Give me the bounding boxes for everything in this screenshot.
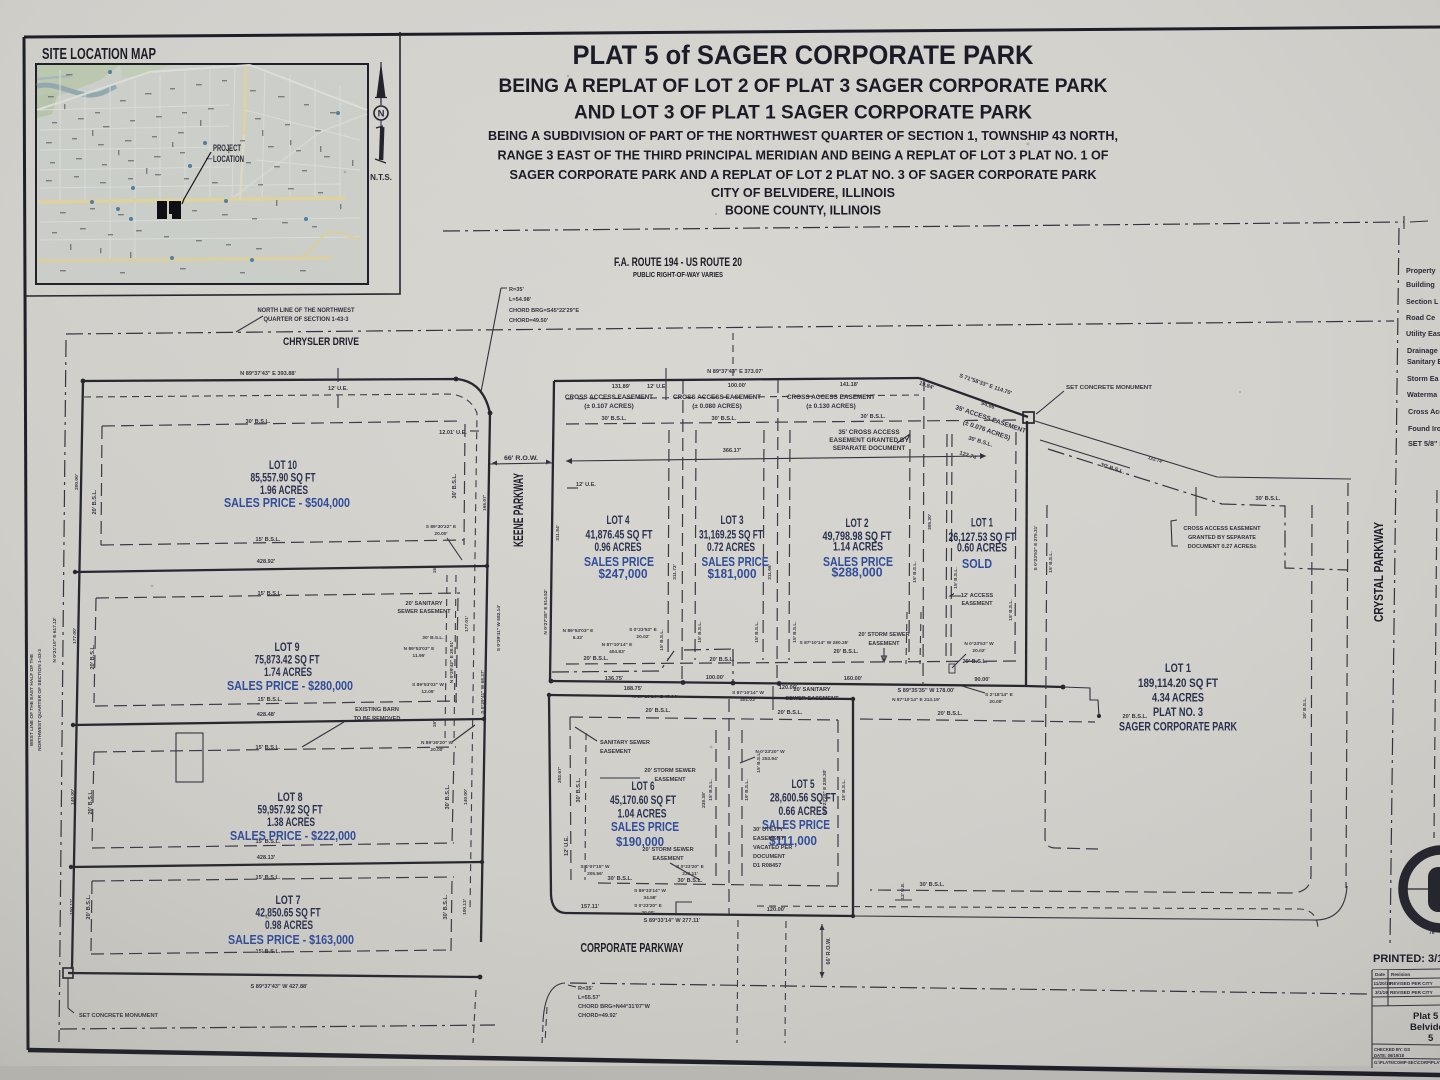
svg-text:LOCATION: LOCATION bbox=[213, 154, 244, 165]
svg-text:30' B.S.L.: 30' B.S.L. bbox=[602, 416, 627, 422]
svg-text:N 0°23'20" W: N 0°23'20" W bbox=[755, 749, 785, 755]
svg-text:12' ACCESS: 12' ACCESS bbox=[961, 593, 993, 599]
svg-text:N 89°53'03" E: N 89°53'03" E bbox=[404, 646, 435, 652]
svg-text:CHORD=49.92': CHORD=49.92' bbox=[578, 1013, 618, 1019]
svg-text:CROSS ACCESS EASEMENT: CROSS ACCESS EASEMENT bbox=[787, 394, 875, 401]
svg-text:30' B.S.L.: 30' B.S.L. bbox=[422, 635, 443, 641]
svg-text:Utility Eas: Utility Eas bbox=[1406, 329, 1440, 338]
svg-text:30' B.S.L.: 30' B.S.L. bbox=[1256, 496, 1281, 502]
svg-text:(± 0.080 ACRES): (± 0.080 ACRES) bbox=[692, 403, 741, 410]
svg-text:15' B.S.L.: 15' B.S.L. bbox=[754, 621, 760, 642]
svg-text:428.48': 428.48' bbox=[257, 712, 276, 718]
svg-text:1.04 ACRES: 1.04 ACRES bbox=[618, 807, 667, 821]
svg-text:F.A. ROUTE 194 - US ROUTE 20: F.A. ROUTE 194 - US ROUTE 20 bbox=[614, 257, 742, 269]
svg-text:SOLD: SOLD bbox=[962, 557, 992, 571]
svg-text:BEING A REPLAT OF LOT 2 OF PLA: BEING A REPLAT OF LOT 2 OF PLAT 3 SAGER … bbox=[499, 75, 1108, 97]
svg-text:12' U.E.: 12' U.E. bbox=[900, 882, 906, 899]
svg-text:R=35': R=35' bbox=[578, 986, 594, 992]
svg-text:EASEMENT: EASEMENT bbox=[868, 641, 900, 647]
svg-text:PRINTED: 3/1/2: PRINTED: 3/1/2 bbox=[1373, 953, 1440, 965]
svg-text:SET CONCRETE MONUMENT: SET CONCRETE MONUMENT bbox=[1066, 385, 1153, 391]
svg-text:S 0°29'41" W 68.37': S 0°29'41" W 68.37' bbox=[480, 670, 486, 714]
svg-text:SEWER EASEMENT: SEWER EASEMENT bbox=[397, 609, 451, 615]
svg-text:20' B.S.L.: 20' B.S.L. bbox=[584, 656, 609, 662]
svg-text:311.84': 311.84' bbox=[555, 525, 561, 541]
svg-text:REVISED PER CITY: REVISED PER CITY bbox=[1390, 990, 1433, 995]
svg-text:PLAT NO. 3: PLAT NO. 3 bbox=[1153, 705, 1203, 719]
svg-text:15' B.S.L.: 15' B.S.L. bbox=[1048, 551, 1054, 572]
svg-text:30' B.S.L.: 30' B.S.L. bbox=[246, 419, 271, 425]
svg-text:S 89°35'35" W 178.00': S 89°35'35" W 178.00' bbox=[898, 688, 956, 694]
svg-text:QUARTER OF SECTION 1-43-3: QUARTER OF SECTION 1-43-3 bbox=[264, 316, 349, 323]
svg-text:12.05': 12.05' bbox=[421, 689, 434, 695]
svg-text:N 87°10'14" E 213.19': N 87°10'14" E 213.19' bbox=[892, 697, 940, 703]
svg-text:3/1/19: 3/1/19 bbox=[1375, 990, 1388, 995]
svg-text:188.75': 188.75' bbox=[624, 686, 643, 692]
svg-text:30' B.S.L.: 30' B.S.L. bbox=[452, 473, 458, 498]
svg-text:404.83': 404.83' bbox=[609, 649, 625, 655]
svg-text:RANGE 3 EAST OF THE THIRD PRIN: RANGE 3 EAST OF THE THIRD PRINCIPAL MERI… bbox=[498, 149, 1109, 163]
svg-text:Property: Property bbox=[1406, 266, 1436, 275]
svg-text:KEENE PARKWAY: KEENE PARKWAY bbox=[511, 473, 526, 547]
svg-text:160.00': 160.00' bbox=[844, 676, 863, 682]
svg-text:EASEMENT: EASEMENT bbox=[652, 856, 684, 862]
svg-text:12.01' U.E.: 12.01' U.E. bbox=[439, 430, 467, 436]
svg-text:SAGER CORPORATE PARK: SAGER CORPORATE PARK bbox=[1119, 720, 1237, 734]
svg-text:15' B.S.L.: 15' B.S.L. bbox=[953, 567, 959, 588]
svg-text:238.38': 238.38' bbox=[701, 792, 707, 808]
svg-text:20' B.S.L.: 20' B.S.L. bbox=[938, 711, 963, 717]
svg-text:12' U.E.: 12' U.E. bbox=[564, 836, 570, 856]
svg-text:100.00': 100.00' bbox=[728, 383, 747, 389]
svg-text:SALES PRICE - $504,000: SALES PRICE - $504,000 bbox=[224, 496, 350, 510]
svg-text:SEPARATE DOCUMENT: SEPARATE DOCUMENT bbox=[833, 445, 906, 452]
svg-text:1.14 ACRES: 1.14 ACRES bbox=[833, 540, 883, 554]
svg-text:N 0°29'42" E 20.01': N 0°29'42" E 20.01' bbox=[449, 641, 455, 683]
svg-text:R=35': R=35' bbox=[509, 287, 525, 293]
svg-text:20.02': 20.02' bbox=[972, 648, 985, 654]
svg-text:SALES PRICE - $222,000: SALES PRICE - $222,000 bbox=[230, 829, 356, 843]
svg-text:30' B.S.L.: 30' B.S.L. bbox=[608, 876, 633, 882]
svg-text:200.00': 200.00' bbox=[74, 474, 80, 490]
svg-text:LOT 1: LOT 1 bbox=[971, 516, 993, 530]
svg-text:L=55.57': L=55.57' bbox=[578, 995, 601, 1001]
svg-text:$247,000: $247,000 bbox=[599, 567, 648, 581]
svg-text:20.00': 20.00' bbox=[430, 747, 443, 753]
svg-text:30' B.S.L.: 30' B.S.L. bbox=[861, 414, 886, 420]
svg-text:SALES PRICE - $163,000: SALES PRICE - $163,000 bbox=[228, 933, 354, 947]
svg-text:LOT 5: LOT 5 bbox=[792, 777, 815, 791]
svg-text:20' B.S.L.: 20' B.S.L. bbox=[646, 708, 671, 714]
svg-text:20' STORM SEWER: 20' STORM SEWER bbox=[644, 768, 695, 774]
svg-text:15' B.S.L.: 15' B.S.L. bbox=[256, 875, 281, 881]
svg-text:0.66 ACRES: 0.66 ACRES bbox=[779, 804, 828, 818]
svg-text:30' B.S.L.: 30' B.S.L. bbox=[443, 894, 449, 919]
svg-text:6.32': 6.32' bbox=[573, 635, 583, 641]
svg-text:15' B.S.L.: 15' B.S.L. bbox=[841, 779, 847, 800]
svg-text:19' B.S.L.: 19' B.S.L. bbox=[744, 779, 750, 800]
svg-text:SANITARY SEWER: SANITARY SEWER bbox=[600, 740, 650, 746]
svg-text:PROJECT: PROJECT bbox=[213, 143, 241, 154]
svg-text:15' B.S.L.: 15' B.S.L. bbox=[256, 949, 281, 955]
svg-text:SET 5/8" I.P: SET 5/8" I.P bbox=[1408, 439, 1440, 448]
svg-text:157.11': 157.11' bbox=[581, 904, 600, 910]
svg-text:LOT 6: LOT 6 bbox=[632, 779, 655, 793]
svg-text:366.17': 366.17' bbox=[723, 448, 742, 454]
svg-text:BEING A SUBDIVISION OF PART OF: BEING A SUBDIVISION OF PART OF THE NORTH… bbox=[488, 129, 1118, 143]
svg-text:15' B.S.L.: 15' B.S.L. bbox=[256, 745, 281, 751]
svg-text:20' STORM SEWER: 20' STORM SEWER bbox=[642, 847, 693, 853]
svg-text:S 89°53'03" W: S 89°53'03" W bbox=[412, 682, 444, 688]
svg-text:N 0°27'38" E 514.52': N 0°27'38" E 514.52' bbox=[543, 589, 549, 634]
svg-text:S 87°10'14" W: S 87°10'14" W bbox=[732, 690, 764, 696]
svg-text:(± 0.130 ACRES): (± 0.130 ACRES) bbox=[806, 403, 855, 410]
svg-text:0.72 ACRES: 0.72 ACRES bbox=[707, 540, 755, 554]
svg-text:N 89°30'20" W: N 89°30'20" W bbox=[421, 740, 453, 746]
svg-text:30' B.S.L.: 30' B.S.L. bbox=[712, 416, 737, 422]
svg-text:131.89': 131.89' bbox=[612, 384, 631, 390]
svg-text:LOT 2: LOT 2 bbox=[846, 516, 869, 530]
svg-text:4.34 ACRES: 4.34 ACRES bbox=[1152, 691, 1204, 705]
svg-text:CORPORATE PARKWAY: CORPORATE PARKWAY bbox=[581, 941, 684, 955]
svg-text:VACATED PER: VACATED PER bbox=[753, 845, 792, 851]
svg-text:CRYSTAL PARKWAY: CRYSTAL PARKWAY bbox=[1371, 522, 1386, 622]
svg-text:N 0°23'53" W: N 0°23'53" W bbox=[964, 641, 994, 647]
svg-text:(± 0.107 ACRES): (± 0.107 ACRES) bbox=[584, 403, 633, 410]
svg-text:Cross Acc: Cross Acc bbox=[1408, 407, 1440, 416]
svg-text:NORTHWEST QUARTER OF SECTION 1: NORTHWEST QUARTER OF SECTION 1-43-3 bbox=[37, 649, 43, 751]
svg-text:N 89°53'03" E: N 89°53'03" E bbox=[563, 628, 594, 634]
svg-text:15': 15' bbox=[432, 721, 438, 727]
svg-text:CROSS ACCESS EASEMENT: CROSS ACCESS EASEMENT bbox=[565, 394, 653, 401]
svg-text:S 89°37'43" W 427.88': S 89°37'43" W 427.88' bbox=[251, 984, 309, 990]
svg-text:15' B.S.L.: 15' B.S.L. bbox=[256, 537, 281, 543]
svg-text:REVISED PER CITY: REVISED PER CITY bbox=[1390, 981, 1433, 986]
svg-text:Sanitary E: Sanitary E bbox=[1407, 357, 1440, 366]
svg-text:DOCUMENT: DOCUMENT bbox=[753, 854, 786, 860]
svg-text:N 89°37'43" E 373.07': N 89°37'43" E 373.07' bbox=[707, 369, 763, 375]
svg-text:428.92': 428.92' bbox=[257, 559, 276, 565]
svg-text:20' B.S.L.: 20' B.S.L. bbox=[710, 657, 735, 663]
svg-text:20.00': 20.00' bbox=[989, 699, 1002, 705]
svg-text:30' B.S.L.: 30' B.S.L. bbox=[576, 777, 582, 802]
svg-text:WEST LINE OF THE EAST HALF OF: WEST LINE OF THE EAST HALF OF THE bbox=[29, 653, 35, 746]
svg-text:35' CROSS ACCESS: 35' CROSS ACCESS bbox=[838, 429, 900, 436]
svg-text:15' B.S.L.: 15' B.S.L. bbox=[258, 697, 283, 703]
svg-text:L=54.98': L=54.98' bbox=[509, 297, 532, 303]
svg-text:SITE LOCATION MAP: SITE LOCATION MAP bbox=[42, 46, 156, 63]
svg-text:$181,000: $181,000 bbox=[708, 567, 757, 581]
svg-text:D1 R08457: D1 R08457 bbox=[753, 863, 781, 869]
svg-text:Section L: Section L bbox=[1406, 297, 1439, 306]
svg-text:S 89°30'22" E: S 89°30'22" E bbox=[426, 524, 457, 530]
svg-text:66' R.O.W.: 66' R.O.W. bbox=[826, 937, 832, 965]
svg-text:Found Iro: Found Iro bbox=[1408, 424, 1440, 433]
svg-text:Plat 5 o: Plat 5 o bbox=[1413, 1011, 1440, 1022]
svg-text:66' R.O.W.: 66' R.O.W. bbox=[504, 455, 538, 462]
svg-text:0.98 ACRES: 0.98 ACRES bbox=[265, 918, 313, 932]
svg-text:12' U.E.: 12' U.E. bbox=[647, 384, 667, 390]
svg-text:S 89°33'14" W 277.11': S 89°33'14" W 277.11' bbox=[644, 918, 701, 924]
svg-text:20' SANITARY: 20' SANITARY bbox=[405, 601, 442, 607]
svg-text:15' B.S.L.: 15' B.S.L. bbox=[258, 591, 283, 597]
svg-text:12' U.E.: 12' U.E. bbox=[328, 386, 348, 392]
svg-text:EASEMENT: EASEMENT bbox=[600, 749, 632, 755]
svg-text:CHORD=49.50': CHORD=49.50' bbox=[509, 318, 549, 324]
svg-text:CROSS ACCESS EASEMENT: CROSS ACCESS EASEMENT bbox=[1183, 526, 1261, 532]
svg-text:N 87°10'14" E: N 87°10'14" E bbox=[602, 642, 633, 648]
svg-text:PLAT 5 of SAGER CORPORATE PARK: PLAT 5 of SAGER CORPORATE PARK bbox=[573, 40, 1034, 70]
svg-text:20' B.S.L.: 20' B.S.L. bbox=[778, 710, 803, 716]
svg-text:20' STORM SEWER: 20' STORM SEWER bbox=[858, 632, 909, 638]
svg-text:N 89°37'43" E 393.88': N 89°37'43" E 393.88' bbox=[240, 371, 296, 377]
svg-text:S 87°10'14" W 280.25': S 87°10'14" W 280.25' bbox=[800, 640, 849, 646]
svg-text:34.58': 34.58' bbox=[643, 895, 656, 901]
svg-text:Road Ce: Road Ce bbox=[1406, 313, 1435, 322]
svg-text:SALES PRICE - $280,000: SALES PRICE - $280,000 bbox=[227, 679, 353, 693]
svg-text:S 2°18'14" E: S 2°18'14" E bbox=[985, 692, 1014, 698]
svg-text:Building: Building bbox=[1406, 280, 1435, 289]
svg-text:15' B.S.L.: 15' B.S.L. bbox=[708, 779, 714, 800]
svg-text:AND LOT 3 OF PLAT 1 SAGER CORP: AND LOT 3 OF PLAT 1 SAGER CORPORATE PARK bbox=[574, 102, 1032, 124]
svg-text:EASEMENT: EASEMENT bbox=[654, 777, 686, 783]
svg-text:BOONE COUNTY, ILLINOIS: BOONE COUNTY, ILLINOIS bbox=[725, 204, 881, 218]
svg-text:DOCUMENT 0.27 ACRES±: DOCUMENT 0.27 ACRES± bbox=[1188, 544, 1257, 550]
svg-text:SALES PRICE: SALES PRICE bbox=[611, 820, 679, 834]
svg-text:5: 5 bbox=[1428, 1033, 1434, 1044]
svg-text:20' B.S.L.: 20' B.S.L. bbox=[90, 644, 96, 669]
svg-text:136.75': 136.75' bbox=[605, 676, 624, 682]
svg-text:20' B.S.L.: 20' B.S.L. bbox=[963, 659, 988, 665]
svg-text:20' SANITARY: 20' SANITARY bbox=[793, 687, 830, 693]
svg-text:100.13': 100.13' bbox=[462, 899, 468, 915]
svg-text:177.00': 177.00' bbox=[72, 628, 78, 644]
svg-text:28,600.56 SQ FT: 28,600.56 SQ FT bbox=[770, 791, 836, 805]
svg-text:Date: Date bbox=[1375, 972, 1385, 977]
svg-text:90.00': 90.00' bbox=[974, 677, 990, 683]
svg-text:11.95': 11.95' bbox=[413, 653, 426, 659]
svg-text:15' B.S.L.: 15' B.S.L. bbox=[912, 561, 918, 582]
svg-text:141.18': 141.18' bbox=[840, 382, 859, 388]
svg-text:S 0°23'53" E: S 0°23'53" E bbox=[629, 627, 658, 633]
svg-text:30' B.S.L.: 30' B.S.L. bbox=[445, 784, 451, 809]
svg-text:LOT 3: LOT 3 bbox=[721, 513, 744, 527]
svg-text:20.00': 20.00' bbox=[641, 910, 654, 916]
svg-text:15' B.S.L.: 15' B.S.L. bbox=[697, 621, 703, 642]
svg-text:EXISTING BARN: EXISTING BARN bbox=[355, 707, 399, 713]
svg-text:CITY OF BELVIDERE, ILLINOIS: CITY OF BELVIDERE, ILLINOIS bbox=[711, 186, 895, 200]
svg-text:SET CONCRETE MONUMENT: SET CONCRETE MONUMENT bbox=[79, 1013, 159, 1019]
svg-text:233.11': 233.11' bbox=[682, 871, 698, 877]
svg-text:N: N bbox=[378, 109, 385, 120]
svg-text:N 0°21'10" E 617.12': N 0°21'10" E 617.12' bbox=[52, 617, 58, 662]
svg-text:45,170.60 SQ FT: 45,170.60 SQ FT bbox=[610, 793, 676, 807]
svg-text:202.67': 202.67' bbox=[557, 767, 563, 783]
svg-text:177.01': 177.01' bbox=[464, 616, 470, 632]
svg-text:1.96 ACRES: 1.96 ACRES bbox=[260, 483, 308, 497]
svg-text:S 0°23'53" E 275.31': S 0°23'53" E 275.31' bbox=[1033, 526, 1039, 571]
svg-text:CHORD BRG=N44°31'07"W: CHORD BRG=N44°31'07"W bbox=[578, 1004, 651, 1010]
svg-text:1.38 ACRES: 1.38 ACRES bbox=[267, 815, 315, 829]
svg-text:CHORD BRG=S45°22'29"E: CHORD BRG=S45°22'29"E bbox=[509, 308, 579, 314]
svg-text:SAGER CORPORATE PARK AND A REP: SAGER CORPORATE PARK AND A REPLAT OF LOT… bbox=[510, 168, 1098, 182]
svg-text:15' B.S.L.: 15' B.S.L. bbox=[792, 621, 798, 642]
svg-text:PUBLIC RIGHT-OF-WAY VARIES: PUBLIC RIGHT-OF-WAY VARIES bbox=[633, 272, 723, 279]
svg-text:Waterma: Waterma bbox=[1407, 390, 1438, 399]
svg-text:30' B.S.L.: 30' B.S.L. bbox=[920, 882, 945, 888]
svg-text:20.02': 20.02' bbox=[636, 634, 649, 640]
svg-text:S 89°33'14" W: S 89°33'14" W bbox=[634, 888, 666, 894]
svg-text:CHECKED BY: GS: CHECKED BY: GS bbox=[1374, 1047, 1410, 1052]
svg-text:DATE: 06/19/18: DATE: 06/19/18 bbox=[1374, 1053, 1405, 1058]
svg-text:Belvider: Belvider bbox=[1410, 1022, 1440, 1033]
svg-text:$288,000: $288,000 bbox=[832, 566, 883, 580]
svg-text:100.12': 100.12' bbox=[69, 899, 75, 915]
svg-text:12' U.E.: 12' U.E. bbox=[576, 482, 596, 488]
svg-text:S 0°23'20" E: S 0°23'20" E bbox=[634, 903, 663, 909]
svg-text:305.30': 305.30' bbox=[927, 514, 933, 530]
svg-text:N.T.S.: N.T.S. bbox=[370, 173, 392, 182]
svg-text:120.00': 120.00' bbox=[767, 907, 786, 913]
svg-text:20' B.S.L.: 20' B.S.L. bbox=[86, 894, 92, 919]
svg-text:G:\PLAT5\COMP-SEC\CORP\PLAT 5.: G:\PLAT5\COMP-SEC\CORP\PLAT 5.dwg bbox=[1374, 1060, 1440, 1065]
svg-text:205.56': 205.56' bbox=[587, 871, 603, 877]
svg-text:CROSS ACCESS EASEMENT: CROSS ACCESS EASEMENT bbox=[673, 394, 761, 401]
svg-text:253.94': 253.94' bbox=[762, 756, 778, 762]
svg-text:LOT 1: LOT 1 bbox=[1165, 661, 1191, 675]
svg-text:189,114.20 SQ FT: 189,114.20 SQ FT bbox=[1138, 676, 1219, 690]
svg-text:11/20/18: 11/20/18 bbox=[1374, 981, 1392, 986]
svg-text:20' B.S.L.: 20' B.S.L. bbox=[92, 489, 98, 514]
svg-text:20' B.S.L.: 20' B.S.L. bbox=[834, 649, 859, 655]
svg-text:140.00': 140.00' bbox=[463, 789, 469, 805]
svg-text:CHRYSLER DRIVE: CHRYSLER DRIVE bbox=[283, 336, 359, 348]
svg-text:30' B.S.L.: 30' B.S.L. bbox=[1302, 697, 1308, 718]
svg-text:GRANTED BY SEPARATE: GRANTED BY SEPARATE bbox=[1188, 535, 1256, 541]
svg-text:EASEMENT: EASEMENT bbox=[753, 836, 785, 842]
svg-text:0.60 ACRES: 0.60 ACRES bbox=[957, 541, 1007, 555]
svg-text:311.72': 311.72' bbox=[672, 564, 678, 580]
svg-text:EASEMENT: EASEMENT bbox=[961, 601, 993, 607]
svg-text:Revision: Revision bbox=[1391, 972, 1410, 977]
svg-text:1.74 ACRES: 1.74 ACRES bbox=[264, 665, 312, 679]
svg-text:100.00': 100.00' bbox=[706, 675, 725, 681]
svg-text:428.13': 428.13' bbox=[257, 855, 276, 861]
svg-text:30' UTILITY: 30' UTILITY bbox=[753, 827, 784, 833]
svg-text:15' B.S.L.: 15' B.S.L. bbox=[1008, 599, 1014, 620]
svg-text:140.00': 140.00' bbox=[70, 789, 76, 805]
svg-text:Storm Ea: Storm Ea bbox=[1407, 374, 1440, 383]
svg-text:165.07': 165.07' bbox=[482, 495, 488, 511]
svg-text:Drainage: Drainage bbox=[1407, 346, 1438, 355]
svg-text:S 0°29'41" W 582.14': S 0°29'41" W 582.14' bbox=[496, 605, 502, 651]
svg-text:S 0°23'20" E: S 0°23'20" E bbox=[676, 864, 705, 870]
svg-text:LOT 4: LOT 4 bbox=[607, 513, 630, 527]
svg-text:0.96 ACRES: 0.96 ACRES bbox=[595, 540, 642, 554]
svg-text:15' B.S.L.: 15' B.S.L. bbox=[659, 629, 665, 650]
svg-text:20' B.S.L.: 20' B.S.L. bbox=[88, 789, 94, 814]
svg-text:NORTH LINE OF THE NORTHWEST: NORTH LINE OF THE NORTHWEST bbox=[258, 307, 355, 314]
svg-text:20.00': 20.00' bbox=[434, 531, 447, 537]
svg-text:76: 76 bbox=[1429, 930, 1435, 936]
